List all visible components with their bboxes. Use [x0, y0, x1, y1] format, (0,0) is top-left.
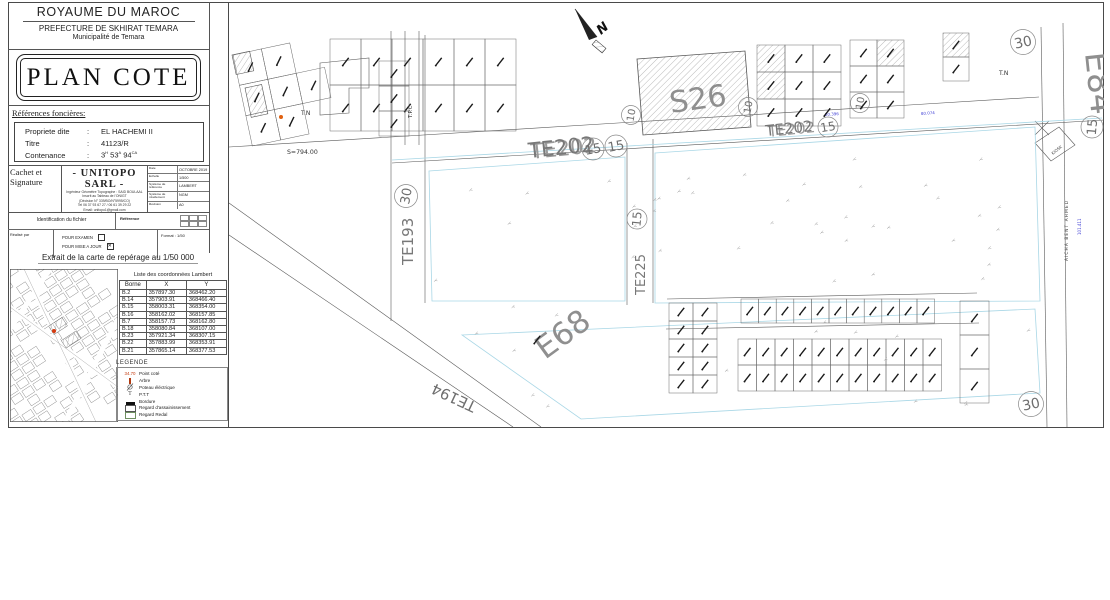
file-identification-title: Identification du fichier [8, 213, 116, 229]
hatched-buildings [232, 51, 268, 117]
checkbox-checked [107, 243, 114, 250]
survey-plan-canvas: N S26 E68 E84 TE202 TE202 TE193 TE225 TE… [229, 3, 1104, 427]
title-value: 41123/R [101, 139, 129, 148]
svg-text:30: 30 [398, 187, 416, 206]
svg-text:15: 15 [819, 119, 836, 135]
col-x: X [146, 281, 186, 290]
table-row: B.18 358080.84 368107.00 [120, 326, 227, 333]
svg-text:15: 15 [607, 138, 626, 156]
survey-marker [279, 115, 283, 119]
legend: LEGENDE 34.70 Point coté Arbre Poteau él… [116, 360, 228, 421]
col-borne: Borne [120, 281, 147, 290]
lambert-coordinates: Liste des coordonnées Lambert Borne X Y … [119, 272, 227, 355]
svg-text:10: 10 [625, 108, 638, 122]
reference-label: Référence [120, 216, 139, 221]
plan-sheet: ROYAUME DU MAROC PREFECTURE DE SKHIRAT T… [0, 0, 1110, 600]
page-title: PLAN COTE [27, 64, 191, 92]
table-row: B.14 357903.91 368466.40 [120, 297, 227, 304]
checkbox-unchecked [98, 234, 105, 241]
parcel-label-e84: E84 [1077, 50, 1104, 117]
revision-grid [180, 215, 207, 227]
road-label-te194: TE194 [429, 379, 480, 416]
signature-section: Cachet et Signature - UNITOPO SARL - Ing… [8, 166, 209, 213]
table-row: B.2 357897.30 368462.20 [120, 290, 227, 297]
road-width-badges: 10 10 10 15 15 15 15 15 30 30 30 [395, 30, 1104, 417]
coordinates-title: Liste des coordonnées Lambert [119, 272, 227, 278]
legend-item-poteau: Poteau éléctrique [121, 384, 225, 391]
checkbox-pour-examen: POUR EXAMEN [62, 233, 157, 242]
title-block: ROYAUME DU MAROC PREFECTURE DE SKHIRAT T… [8, 2, 210, 253]
legend-title: LEGENDE [116, 360, 228, 366]
surveyor-company: - UNITOPO SARL - Ingénieur Géomètre Topo… [62, 166, 147, 212]
area-value: 3H 53A 94CA [101, 150, 137, 160]
map-extract-title: Extrait de la carte de repérage au 1/50 … [8, 253, 228, 268]
north-label: N [594, 20, 612, 39]
prefecture-title: PREFECTURE DE SKHIRAT TEMARA [8, 24, 209, 33]
legend-item-regard-redal: Regard Redal [121, 411, 225, 418]
col-y: Y [186, 281, 226, 290]
street-name-label: AICHA BENT AHMED [1064, 200, 1070, 261]
location-extract-map [10, 269, 118, 422]
svg-text:15: 15 [584, 141, 603, 159]
table-row: B.7 358157.73 368162.80 [120, 318, 227, 325]
parcel-label-e68: E68 [529, 303, 598, 367]
signature-label: Cachet et Signature [8, 166, 62, 212]
title-row: Titre : 41123/R [25, 137, 203, 149]
administrative-header: ROYAUME DU MAROC PREFECTURE DE SKHIRAT T… [8, 5, 209, 50]
plan-meta-table: DateOCTOBRE 2019 Echelle1/500 Système de… [147, 166, 209, 212]
cartouche-inner-border: PLAN COTE [20, 58, 197, 97]
svg-text:30: 30 [1021, 395, 1042, 414]
table-row: B.16 358162.02 368157.85 [120, 311, 227, 318]
terrain-naturel-label-2: T.N [998, 70, 1008, 77]
road-label-te193: TE193 [399, 218, 417, 266]
surface-label: S=794.00 [287, 149, 318, 156]
land-references-box: Propriete dite : EL HACHEMI II Titre : 4… [14, 122, 204, 162]
cartouche-outer-border: PLAN COTE [16, 54, 201, 101]
svg-text:101.411: 101.411 [1077, 218, 1082, 235]
company-name: - UNITOPO SARL - [62, 168, 147, 190]
table-row: B.22 357883.99 368353.91 [120, 340, 227, 347]
road-label-te202-2: TE202 [764, 117, 814, 140]
checkbox-pour-mise-a-jour: POUR MISE A JOUR [62, 242, 157, 251]
svg-text:30: 30 [1013, 33, 1034, 52]
property-value: EL HACHEMI II [101, 127, 153, 136]
electric-pole-icon [126, 383, 134, 391]
area-row: Contenance : 3H 53A 94CA [25, 149, 203, 161]
country-title: ROYAUME DU MAROC [23, 5, 195, 22]
table-row: B.23 357921.34 368307.15 [120, 333, 227, 340]
file-identification-section: Identification du fichier Référence Réal… [8, 213, 209, 258]
parcel-boundaries [392, 118, 1102, 419]
land-references-section: Références foncières: Propriete dite : E… [8, 108, 209, 166]
table-row: B.15 358003.31 368354.00 [120, 304, 227, 311]
svg-text:15: 15 [1085, 118, 1101, 136]
municipality-title: Municipalité de Temara [8, 34, 209, 41]
coordinates-table: Borne X Y B.2 357897.30 368462.20 B.14 3… [119, 280, 227, 355]
svg-text:15: 15 [629, 211, 644, 227]
water-manhole-icon [125, 412, 136, 419]
road-label-te225: TE225 [634, 254, 649, 296]
plan-title-cartouche: PLAN COTE [8, 50, 209, 106]
svg-text:80.074: 80.074 [921, 110, 936, 116]
svg-text:10: 10 [742, 100, 755, 114]
land-references-title: Références foncières: [12, 108, 209, 118]
property-row: Propriete dite : EL HACHEMI II [25, 125, 203, 137]
table-row: B.21 357865.14 368377.53 [120, 347, 227, 354]
north-arrow-icon: N [575, 9, 612, 53]
